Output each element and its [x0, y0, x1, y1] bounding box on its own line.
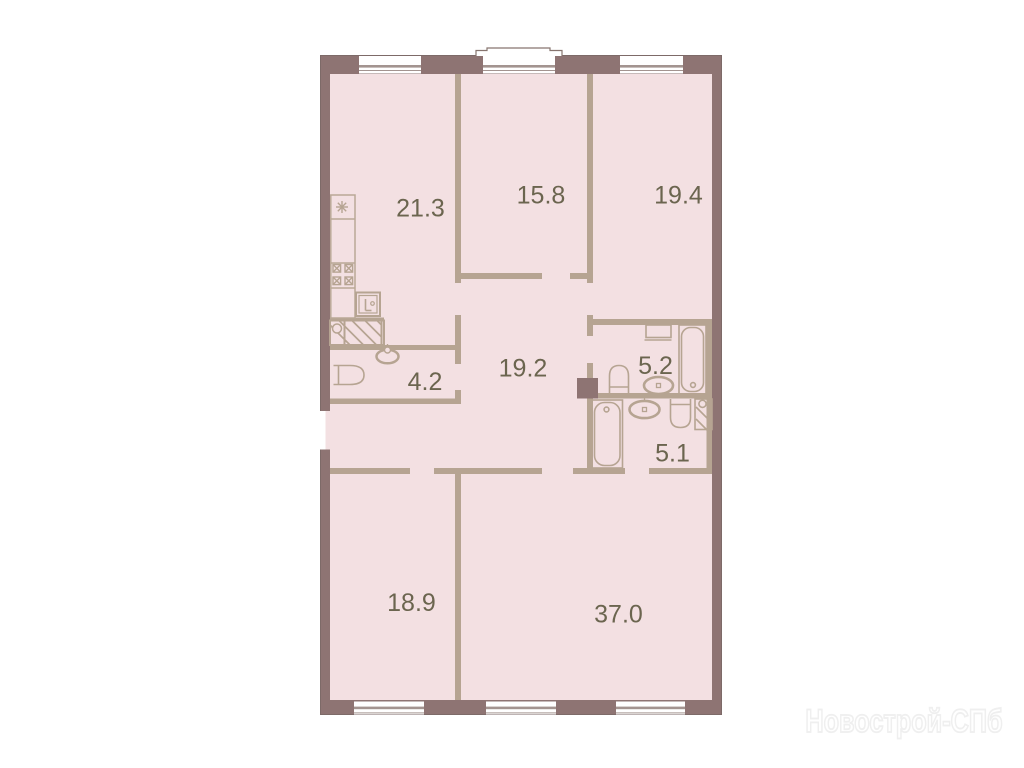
svg-text:5.1: 5.1 — [655, 440, 690, 468]
svg-text:5.2: 5.2 — [638, 352, 673, 380]
svg-text:19.4: 19.4 — [654, 182, 703, 210]
svg-text:19.2: 19.2 — [499, 355, 548, 383]
svg-text:15.8: 15.8 — [517, 182, 566, 210]
svg-text:4.2: 4.2 — [408, 368, 443, 396]
svg-text:18.9: 18.9 — [387, 589, 436, 617]
svg-text:21.3: 21.3 — [396, 195, 445, 223]
svg-text:37.0: 37.0 — [594, 601, 643, 629]
svg-text:Новострой-СПб: Новострой-СПб — [805, 704, 1002, 740]
